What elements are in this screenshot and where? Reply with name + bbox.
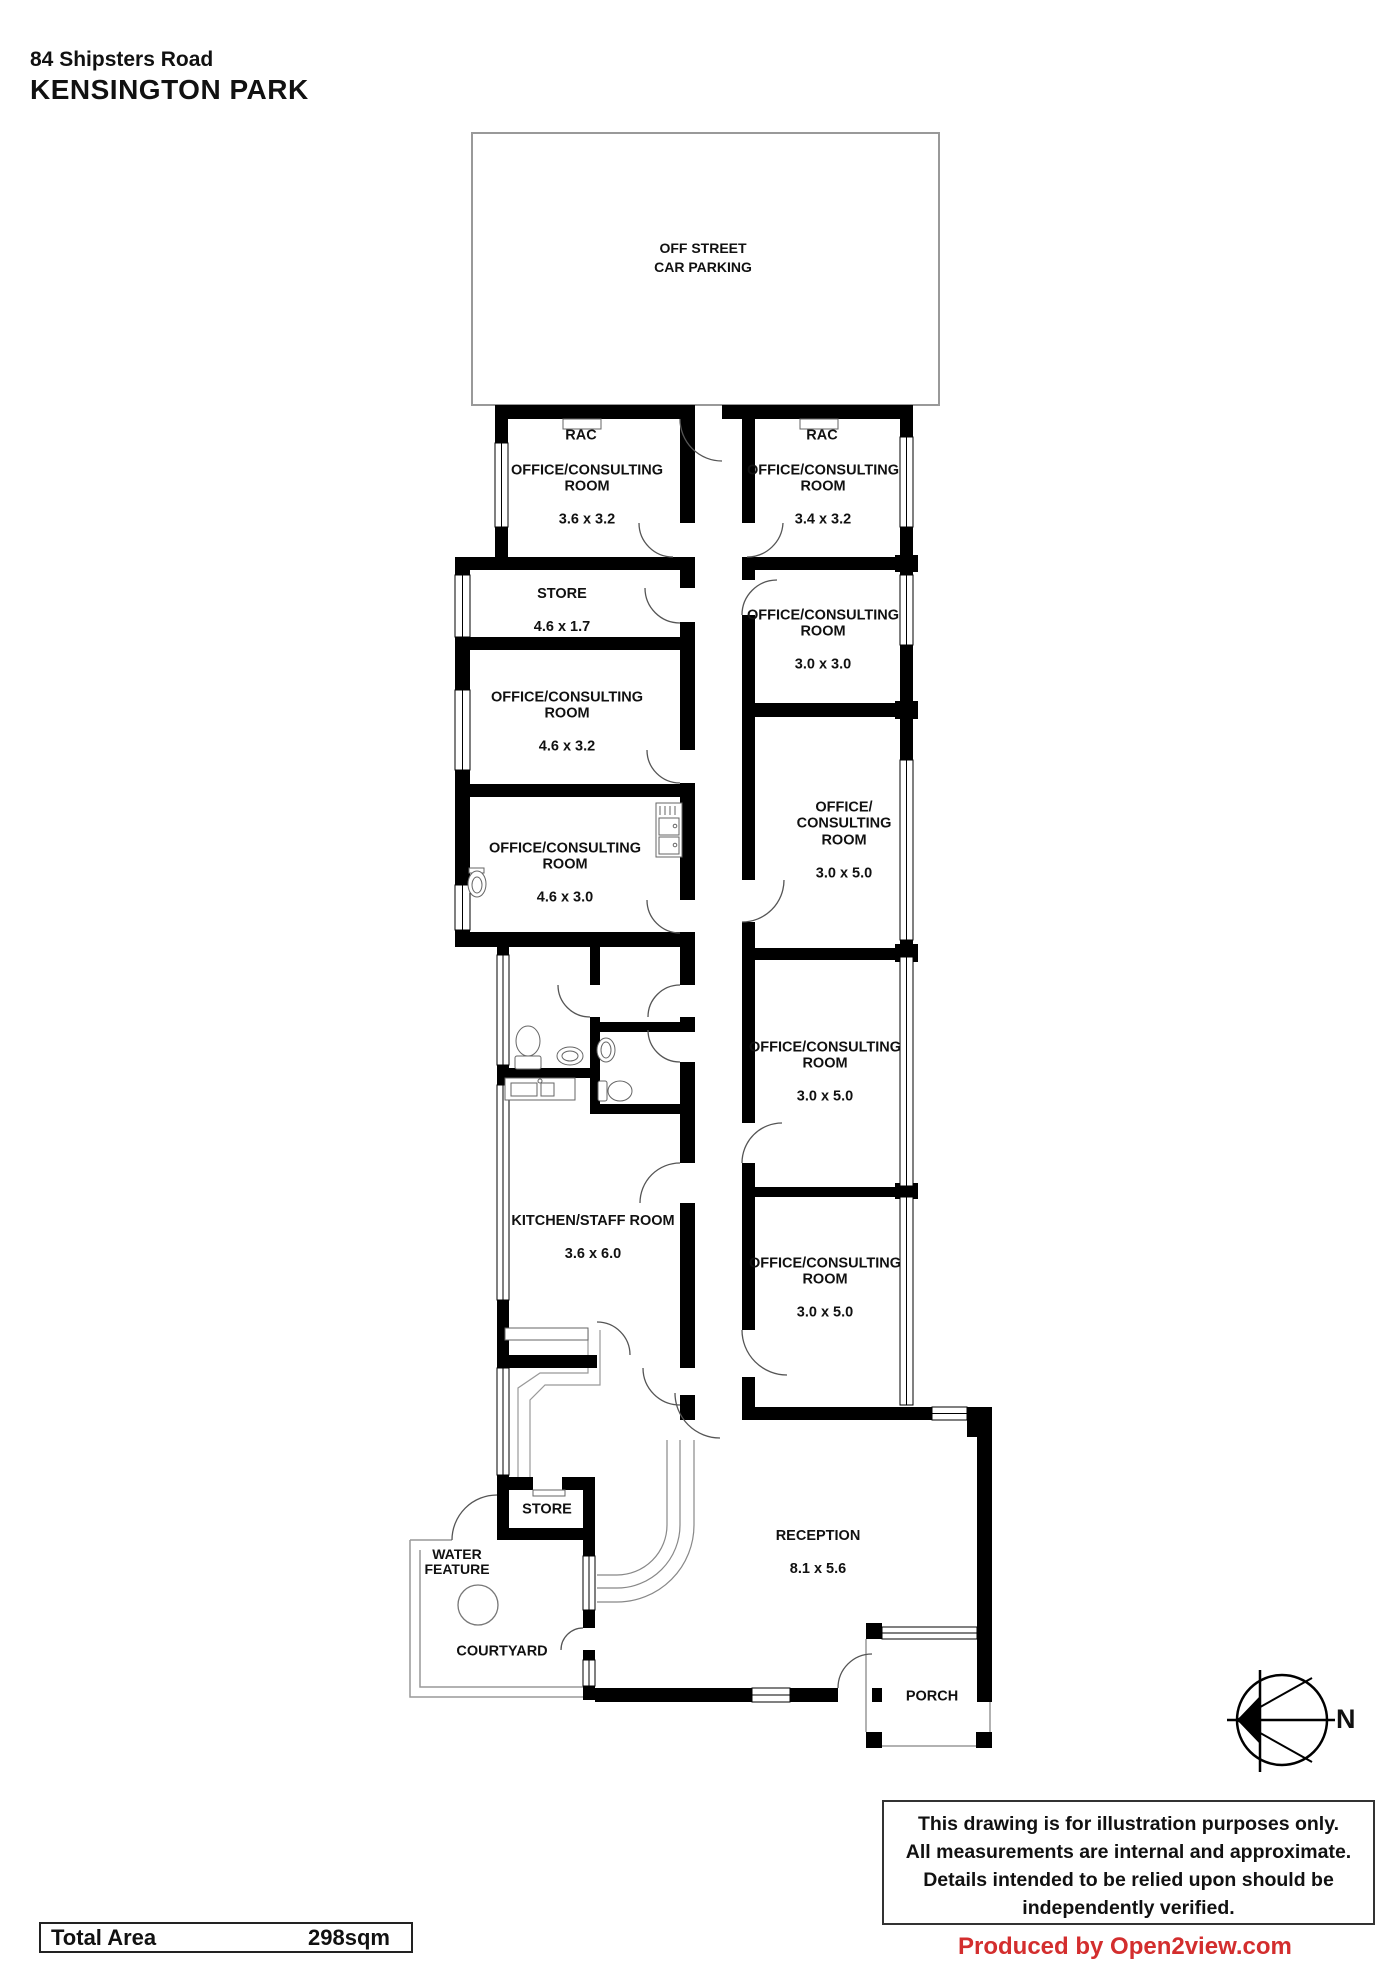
basin-icon (557, 1047, 583, 1065)
entry-ramp (518, 1330, 600, 1477)
room-label-office-mid-left: OFFICE/CONSULTING ROOM 4.6 x 3.2 (491, 673, 643, 772)
room-label-water-feature: WATER FEATURE (424, 1531, 489, 1593)
kitchen-bench (505, 1328, 588, 1340)
toilet-icon (598, 1081, 632, 1101)
toilet-icon (515, 1026, 541, 1069)
room-label-office-3050-a: OFFICE/ CONSULTING ROOM 3.0 x 5.0 (797, 782, 892, 898)
wall-sink-icon (468, 868, 486, 897)
room-label-courtyard: COURTYARD (456, 1626, 547, 1676)
compass-icon (1227, 1670, 1335, 1772)
basin-icon (597, 1038, 615, 1062)
room-label-kitchen: KITCHEN/STAFF ROOM 3.6 x 6.0 (511, 1196, 674, 1279)
compass-north-label: N (1336, 1704, 1356, 1735)
room-label-parking: OFF STREET CAR PARKING (654, 220, 752, 296)
curved-glass-wall (597, 1440, 694, 1602)
room-label-store-lower: STORE (522, 1484, 572, 1534)
room-label-reception: RECEPTION 8.1 x 5.6 (776, 1511, 861, 1594)
produced-by-credit: Produced by Open2view.com (958, 1933, 1292, 1961)
room-label-porch: PORCH (906, 1671, 958, 1721)
room-label-office-top-right: OFFICE/CONSULTING ROOM 3.4 x 3.2 (747, 446, 899, 545)
room-label-office-lower-left: OFFICE/CONSULTING ROOM 4.6 x 3.0 (489, 824, 641, 923)
room-label-office-3030: OFFICE/CONSULTING ROOM 3.0 x 3.0 (747, 591, 899, 690)
total-area-label: Total Area (51, 1925, 156, 1951)
room-label-office-top-left: OFFICE/CONSULTING ROOM 3.6 x 3.2 (511, 446, 663, 545)
room-label-store-upper: STORE 4.6 x 1.7 (534, 569, 590, 652)
disclaimer-box: This drawing is for illustration purpose… (882, 1800, 1375, 1925)
floor-plan-drawing (0, 0, 1400, 1980)
room-label-office-3050-b: OFFICE/CONSULTING ROOM 3.0 x 5.0 (749, 1023, 901, 1122)
floor-plan-page: 84 Shipsters Road KENSINGTON PARK (0, 0, 1400, 1980)
total-area-value: 298sqm (308, 1925, 390, 1951)
room-label-office-3050-c: OFFICE/CONSULTING ROOM 3.0 x 5.0 (749, 1239, 901, 1338)
total-area-bar: Total Area 298sqm (39, 1922, 413, 1953)
kitchen-sink-icon (505, 1078, 575, 1100)
heater-unit-icon (656, 803, 682, 857)
